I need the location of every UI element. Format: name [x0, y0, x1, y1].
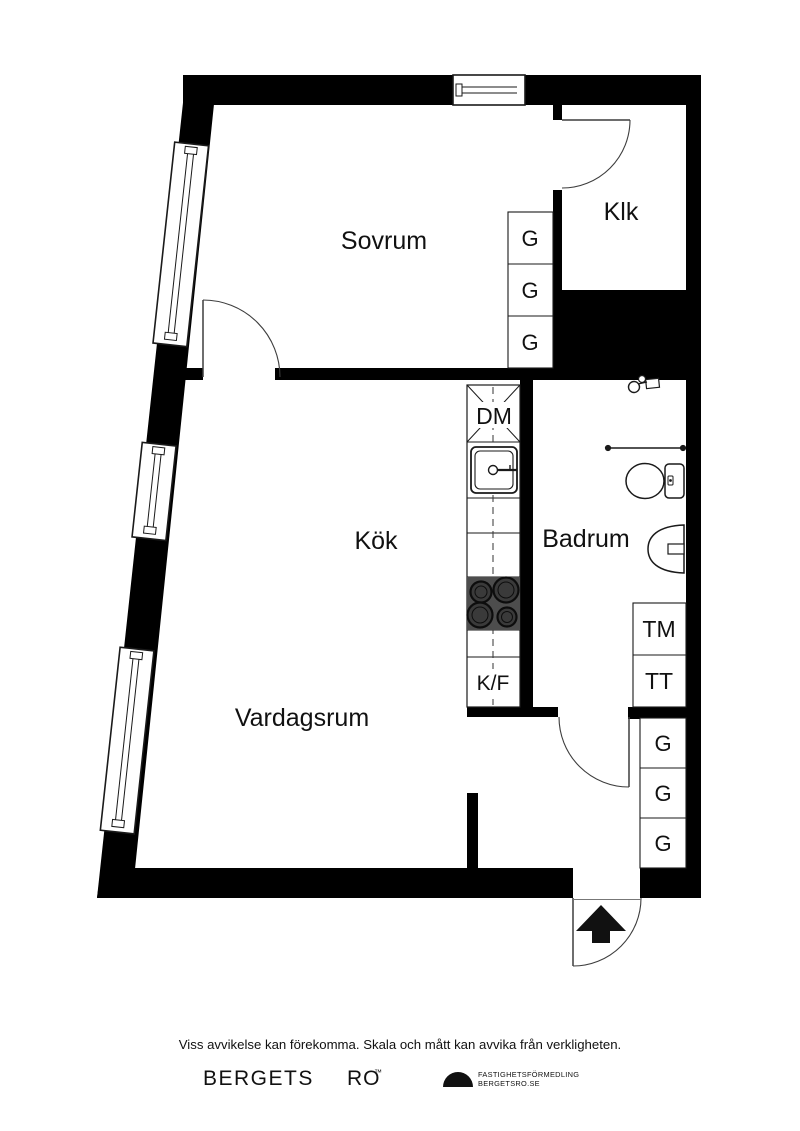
wardrobe-label: G [654, 781, 671, 806]
kitchen-sink-icon [471, 447, 517, 493]
wall-kitchen-bathroom [520, 380, 533, 707]
wardrobe-label: G [521, 330, 538, 355]
toilet-icon [626, 464, 684, 499]
stove-icon [467, 577, 520, 630]
room-label-living-room: Vardagsrum [235, 704, 369, 732]
floor-plan-page: DM K/F G G G G G G TM TT [0, 0, 800, 1131]
washing-machine-label: TM [642, 616, 675, 642]
wall-bottom-left [97, 868, 573, 898]
kitchen-counter: DM K/F [467, 385, 520, 707]
agency-name: FASTIGHETSFÖRMEDLING [478, 1070, 579, 1079]
wall-hall-stub [467, 793, 478, 870]
tumble-dryer-label: TT [645, 668, 673, 694]
wardrobe-label: G [521, 226, 538, 251]
wall-closet-stub-top [553, 105, 562, 120]
disclaimer-text: Viss avvikelse kan förekomma. Skala och … [179, 1037, 621, 1052]
wall-bedroom-south-stub [168, 368, 203, 380]
floor-plan: DM K/F G G G G G G TM TT [0, 0, 800, 1131]
wall-top-right [525, 75, 701, 105]
room-label-bedroom: Sovrum [341, 227, 427, 255]
wall-bathroom-south [628, 707, 686, 719]
trademark-mark: ™ [374, 1068, 382, 1077]
room-label-bathroom: Badrum [542, 525, 630, 553]
wardrobe-label: G [654, 731, 671, 756]
entry-arrow-icon [576, 905, 626, 943]
agency-url: BERGETSRO.SE [478, 1079, 540, 1088]
dishwasher-label: DM [476, 403, 512, 429]
brand-bergets: BERGETS [203, 1067, 314, 1090]
wall-top-left [183, 75, 453, 105]
agency-semicircle-icon [443, 1072, 473, 1087]
wall-right [686, 75, 701, 898]
wardrobe-label: G [521, 278, 538, 303]
wardrobe-label: G [654, 831, 671, 856]
fridge-freezer-label: K/F [477, 672, 510, 695]
room-label-kitchen: Kök [354, 527, 398, 555]
brand-logos: BERGETS RO ™ FASTIGHETSFÖRMEDLING BERGET… [203, 1067, 579, 1090]
wall-closet [553, 190, 562, 290]
wall-block-closet-bathroom [553, 290, 701, 380]
wall-bottom-right [640, 865, 701, 898]
room-label-closet: Klk [604, 198, 639, 226]
wall-kitchen-south [467, 707, 558, 717]
wall-bedroom-south [275, 368, 562, 380]
window-top [453, 75, 525, 105]
